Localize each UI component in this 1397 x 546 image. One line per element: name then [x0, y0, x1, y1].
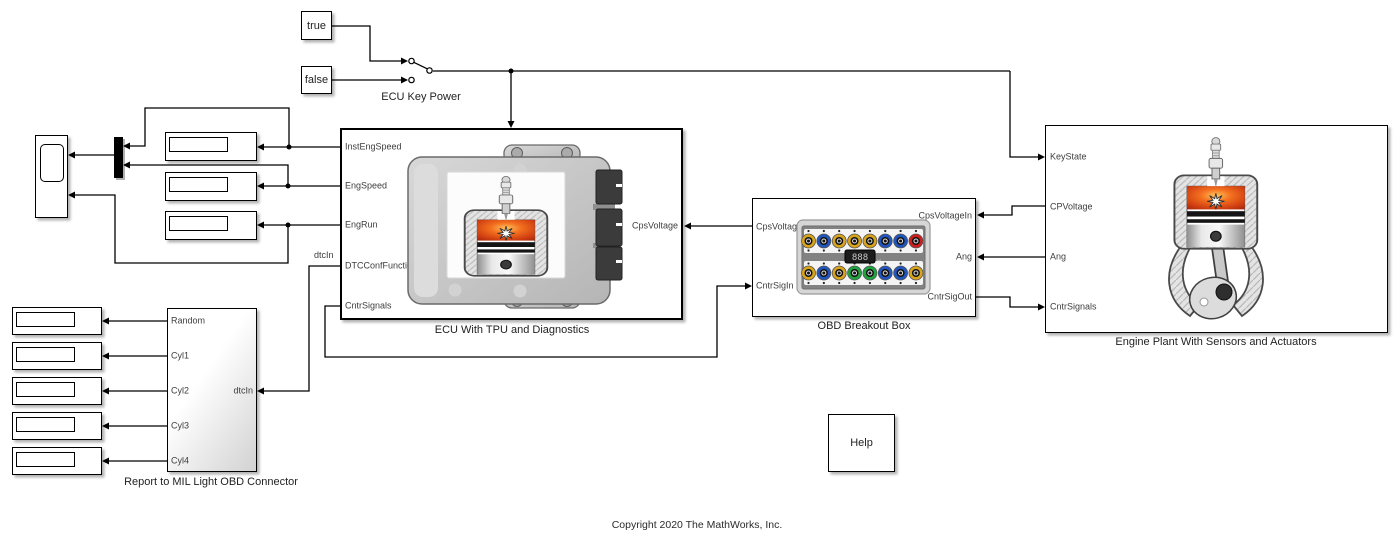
scope-block[interactable] — [35, 135, 68, 218]
help-label: Help — [850, 437, 873, 449]
obd-port-cpsvoltagein: CpsVoltageIn — [918, 212, 972, 221]
constant-true-label: true — [307, 20, 326, 32]
display-insengspeed[interactable] — [165, 132, 257, 161]
ecu-port-cpsvoltage: CpsVoltage — [632, 222, 678, 231]
report-port-cyl2: Cyl2 — [171, 387, 189, 396]
copyright-text: Copyright 2020 The MathWorks, Inc. — [612, 519, 783, 531]
engine-port-cntrsignals: CntrSignals — [1050, 303, 1097, 312]
display-engspeed[interactable] — [165, 172, 257, 201]
scope-screen — [40, 144, 64, 182]
display-field — [169, 137, 228, 152]
display-field — [169, 216, 228, 231]
obd-port-cntrsigout: CntrSigOut — [927, 293, 972, 302]
display-cyl4[interactable] — [12, 447, 102, 475]
report-block-caption: Report to MIL Light OBD Connector — [124, 477, 298, 488]
display-field — [169, 177, 228, 192]
ecu-port-dtcconffunctiontpu: DTCConfFunctionTPU — [345, 262, 435, 271]
wire-cntrsigout — [976, 297, 1039, 307]
switch-caption: ECU Key Power — [381, 92, 460, 103]
help-block[interactable]: Help — [828, 414, 895, 472]
wire-true-to-switch — [332, 26, 401, 61]
constant-false-block[interactable]: false — [301, 66, 332, 94]
report-port-dtcin: dtcIn — [233, 387, 253, 396]
wire-dtc — [263, 266, 340, 391]
engine-port-keystate: KeyState — [1050, 153, 1087, 162]
display-cyl1[interactable] — [12, 342, 102, 370]
ecu-port-engspeed: EngSpeed — [345, 182, 387, 191]
report-port-random: Random — [171, 317, 205, 326]
display-field — [16, 312, 75, 327]
obd-port-cntrsigin: CntrSigIn — [756, 282, 794, 291]
engine-port-ang: Ang — [1050, 253, 1066, 262]
display-field — [16, 452, 75, 467]
report-port-cyl4: Cyl4 — [171, 457, 189, 466]
wire-cpvoltage — [984, 206, 1045, 215]
engine-port-cpvoltage: CPVoltage — [1050, 203, 1093, 212]
simulink-model-canvas: true false InstEngSpeed EngSpeed EngRun … — [0, 0, 1397, 546]
dtcin-signal-label: dtcIn — [314, 251, 334, 260]
mux-block[interactable] — [114, 137, 125, 180]
display-random[interactable] — [12, 307, 102, 335]
ecu-port-cntrsignals: CntrSignals — [345, 302, 392, 311]
display-field — [16, 417, 75, 432]
obd-port-cpsvoltageout: CpsVoltageOut — [756, 223, 817, 232]
engine-block-caption: Engine Plant With Sensors and Actuators — [1115, 337, 1316, 348]
ecu-port-instengspeed: InstEngSpeed — [345, 143, 402, 152]
ecu-port-engrun: EngRun — [345, 221, 378, 230]
display-engrun[interactable] — [165, 211, 257, 240]
display-field — [16, 347, 75, 362]
ecu-block-caption: ECU With TPU and Diagnostics — [435, 325, 589, 336]
display-field — [16, 382, 75, 397]
obd-port-ang: Ang — [956, 253, 972, 262]
display-cyl2[interactable] — [12, 377, 102, 405]
constant-false-label: false — [305, 74, 328, 86]
constant-true-block[interactable]: true — [301, 11, 332, 40]
report-port-cyl1: Cyl1 — [171, 352, 189, 361]
wire-to-keystate — [1010, 71, 1039, 157]
manual-switch-block[interactable] — [409, 58, 432, 82]
display-cyl3[interactable] — [12, 412, 102, 440]
report-port-cyl3: Cyl3 — [171, 422, 189, 431]
obd-block-caption: OBD Breakout Box — [818, 321, 911, 332]
